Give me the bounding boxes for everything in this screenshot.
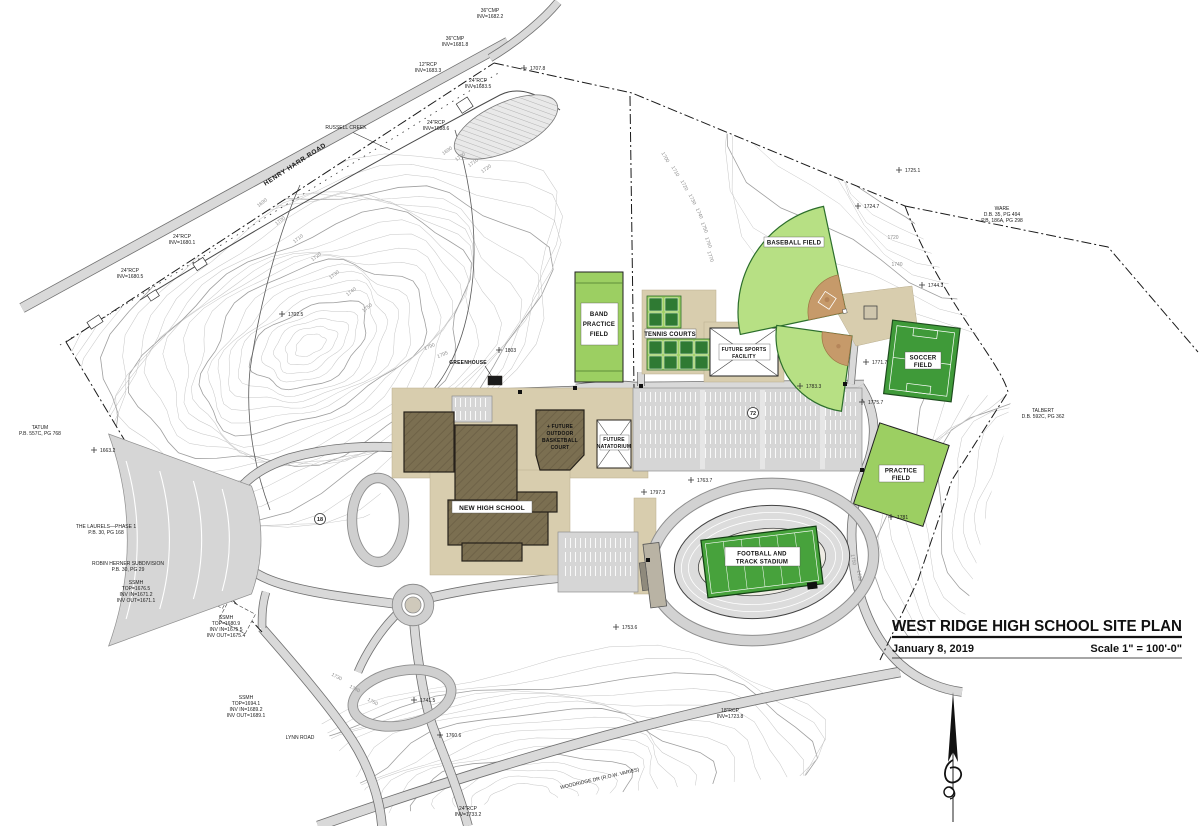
contour-line xyxy=(964,400,1194,635)
contour-line xyxy=(865,0,1126,179)
annotation-label: INV=1683.3 xyxy=(415,68,442,74)
svg-text:FUTURE SPORTS: FUTURE SPORTS xyxy=(722,347,767,353)
annotation-label: 1720 xyxy=(887,235,898,241)
annotation-label: 1750 xyxy=(699,221,709,234)
svg-text:PRACTICE: PRACTICE xyxy=(583,322,615,328)
annotation-label: INV OUT=1675.4 xyxy=(207,633,246,639)
annotation-label: 1797.3 xyxy=(650,490,666,496)
annotation-label: 1750 xyxy=(366,697,379,708)
baseball-label: BASEBALL FIELD xyxy=(764,237,824,247)
annotation-label: 1781 xyxy=(897,515,908,521)
contour-line xyxy=(835,0,1190,212)
sediment-basin xyxy=(445,82,567,173)
tennis-label: TENNIS COURTS xyxy=(644,329,696,338)
annotation-label: INV=1682.2 xyxy=(477,14,504,20)
annotation-label: 1763.7 xyxy=(697,478,713,484)
annotation-label: RUSSELL CREEK xyxy=(325,125,367,131)
annotation-label: 1740 xyxy=(345,286,358,298)
contour-group xyxy=(147,618,850,826)
roundabout-island xyxy=(405,597,421,613)
stadium-gate xyxy=(807,581,818,589)
boundary-segment xyxy=(66,63,494,342)
baseball-field xyxy=(718,206,847,335)
soccer-label: SOCCER FIELD xyxy=(905,352,941,369)
annotation-label: 1760.6 xyxy=(446,733,462,739)
annotation-label: 1690 xyxy=(256,197,269,209)
southeast-parking-lot xyxy=(558,532,638,592)
annotation-label: P.B. 186A, PG 298 xyxy=(981,218,1023,224)
annotation-label: 1710 xyxy=(292,233,305,245)
svg-text:FIELD: FIELD xyxy=(590,332,609,338)
contour-line xyxy=(938,0,1081,118)
annotation-label: 1744.3 xyxy=(928,283,944,289)
annotation-label: 1720 xyxy=(480,163,493,174)
school-label: NEW HIGH SCHOOL xyxy=(452,501,532,513)
svg-text:FACILITY: FACILITY xyxy=(732,354,756,360)
contour-line xyxy=(266,303,360,384)
contour-line xyxy=(788,0,1200,277)
annotation-label: INV=1733.2 xyxy=(455,812,482,818)
north-arrow-icon xyxy=(944,692,961,822)
annotation-label: 1700 xyxy=(274,215,287,227)
annotation-label: P.B. 30, PG 29 xyxy=(112,567,145,573)
annotation-label: 1700 xyxy=(659,151,670,164)
svg-text:BASKETBALL: BASKETBALL xyxy=(542,438,578,444)
annotation-label: 1795 xyxy=(436,350,449,360)
annotation-label: 1707.8 xyxy=(530,66,546,72)
contour-line xyxy=(977,415,1176,620)
annotation-label: INV OUT=1689.1 xyxy=(227,713,266,719)
annotation-label: 72 xyxy=(750,411,756,417)
contour-line xyxy=(883,0,1117,167)
contour-line xyxy=(290,328,329,361)
henry-harr-road xyxy=(22,42,508,308)
annotation-label: D.B. 592C, PG 362 xyxy=(1022,414,1065,420)
annotation-label: INV=1688.6 xyxy=(423,126,450,132)
spot-elevation-cross xyxy=(855,203,861,209)
boundary-segment xyxy=(494,63,905,206)
annotation-label: INV=1680.5 xyxy=(117,274,144,280)
svg-text:BASEBALL FIELD: BASEBALL FIELD xyxy=(767,241,822,247)
plan-scale: Scale 1" = 100'-0" xyxy=(1090,643,1182,655)
school-gym-wing xyxy=(404,412,454,472)
spot-elevation-cross xyxy=(613,624,619,630)
contour-line xyxy=(951,388,1200,655)
greenhouse-building xyxy=(488,376,502,385)
svg-text:TRACK STADIUM: TRACK STADIUM xyxy=(736,560,788,566)
svg-text:SOCCER: SOCCER xyxy=(910,356,937,362)
contour-line xyxy=(840,0,1167,192)
title-block: WEST RIDGE HIGH SCHOOL SITE PLAN January… xyxy=(892,618,1182,658)
contour-line xyxy=(1004,445,1146,592)
contour-line xyxy=(263,657,800,826)
contour-line xyxy=(204,262,406,435)
fence-line xyxy=(630,96,634,388)
contour-line xyxy=(922,0,1095,136)
svg-text:PRACTICE: PRACTICE xyxy=(885,469,917,475)
svg-text:NATATORIUM: NATATORIUM xyxy=(597,444,631,450)
annotation-label: P.B. 30, PG 168 xyxy=(88,530,124,536)
contour-line xyxy=(1016,460,1130,577)
svg-text:GREENHOUSE: GREENHOUSE xyxy=(449,360,487,366)
annotation-label: 1730 xyxy=(330,672,343,683)
annotation-label: INV=1683.5 xyxy=(465,84,492,90)
contour-line xyxy=(1030,476,1116,565)
site-plan-sheet: BAND PRACTICE FIELD TENNIS COURTS BASEBA… xyxy=(0,0,1200,826)
plan-title: WEST RIDGE HIGH SCHOOL SITE PLAN xyxy=(892,618,1182,635)
annotation-label: 18 xyxy=(317,517,323,523)
contour-line xyxy=(902,0,1107,153)
svg-text:FOOTBALL AND: FOOTBALL AND xyxy=(737,552,787,558)
annotation-label: 1740 xyxy=(694,207,704,220)
contour-line xyxy=(832,0,1200,236)
contour-line xyxy=(237,284,388,411)
svg-text:FIELD: FIELD xyxy=(892,476,911,482)
practice-label: PRACTICE FIELD xyxy=(879,465,924,482)
stadium-label: FOOTBALL AND TRACK STADIUM xyxy=(725,547,800,566)
band-field-label: BAND PRACTICE FIELD xyxy=(581,303,618,345)
contour-line xyxy=(220,273,398,424)
offsite-buildings xyxy=(87,97,473,329)
lynn-connector xyxy=(262,592,266,628)
annotation-label: 1663.2 xyxy=(100,448,116,454)
annotation-label: 1730 xyxy=(687,193,697,206)
annotation-label: 1724.7 xyxy=(864,204,880,210)
svg-text:+ FUTURE: + FUTURE xyxy=(547,424,574,430)
annotation-label: 1775.7 xyxy=(868,400,884,406)
svg-text:FIELD: FIELD xyxy=(914,363,933,369)
svg-text:OUTDOOR: OUTDOOR xyxy=(547,431,574,437)
svg-text:NEW HIGH SCHOOL: NEW HIGH SCHOOL xyxy=(459,505,525,512)
annotation-label: 1803 xyxy=(505,348,516,354)
contour-line xyxy=(176,636,846,826)
annotation-label: LYNN ROAD xyxy=(286,735,315,741)
henry-harr-branch xyxy=(490,2,558,58)
annotation-label: INV=1680.1 xyxy=(169,240,196,246)
annotation-label: 1702.5 xyxy=(288,312,304,318)
annotation-label: INV=1681.8 xyxy=(442,42,469,48)
annotation-label: HENRY HARR ROAD xyxy=(263,142,328,188)
annotation-label: 1710 xyxy=(669,165,680,178)
spot-elevation-cross xyxy=(919,282,925,288)
annotation-label: 1740 xyxy=(891,262,902,268)
spot-elevation-cross xyxy=(279,311,285,317)
svg-text:BAND: BAND xyxy=(590,312,609,318)
spot-elevation-cross xyxy=(863,359,869,365)
annotation-label: 1771.7 xyxy=(872,360,888,366)
annotation-label: 1783.3 xyxy=(806,384,822,390)
school-classroom-wing xyxy=(455,425,517,503)
annotation-label: 1690 xyxy=(441,145,454,156)
annotation-label: 1753.6 xyxy=(622,625,638,631)
annotation-label: 1730 xyxy=(328,269,341,281)
annotation-label: 1790 xyxy=(423,342,436,352)
contour-line xyxy=(990,431,1160,606)
north-parking-lot xyxy=(452,396,492,422)
spot-elevation-cross xyxy=(641,489,647,495)
future-sports-label: FUTURE SPORTS FACILITY xyxy=(719,344,770,360)
annotation-label: P.B. 557C, PG 768 xyxy=(19,431,61,437)
school-south-wing xyxy=(462,543,522,561)
contour-line xyxy=(147,618,850,826)
spot-elevation-cross xyxy=(896,167,902,173)
concession-building xyxy=(864,306,877,319)
plan-date: January 8, 2019 xyxy=(892,643,974,655)
contour-line xyxy=(190,248,420,443)
annotation-label: 1760 xyxy=(703,236,713,249)
annotation-label: 1770 xyxy=(705,250,714,263)
annotation-label: INV OUT=1671.1 xyxy=(117,598,156,604)
annotation-label: 1741.5 xyxy=(420,698,436,704)
site-plan-drawing: BAND PRACTICE FIELD TENNIS COURTS BASEBA… xyxy=(0,0,1200,826)
svg-text:TENNIS COURTS: TENNIS COURTS xyxy=(644,332,696,338)
spot-elevation-cross xyxy=(91,447,97,453)
contour-line xyxy=(850,0,1144,186)
annotation-label: WOODRIDGE DR (R.O.W. VARIES) xyxy=(560,767,640,791)
annotation-label: INV=1723.8 xyxy=(717,714,744,720)
annotation-label: 1725.1 xyxy=(905,168,921,174)
annotation-label: 1720 xyxy=(679,179,690,192)
natatorium-label: FUTURE NATATORIUM xyxy=(597,435,631,450)
utility-line xyxy=(60,72,500,345)
spot-elevation-cross xyxy=(688,477,694,483)
svg-text:COURT: COURT xyxy=(551,445,570,451)
svg-text:FUTURE: FUTURE xyxy=(603,437,625,443)
